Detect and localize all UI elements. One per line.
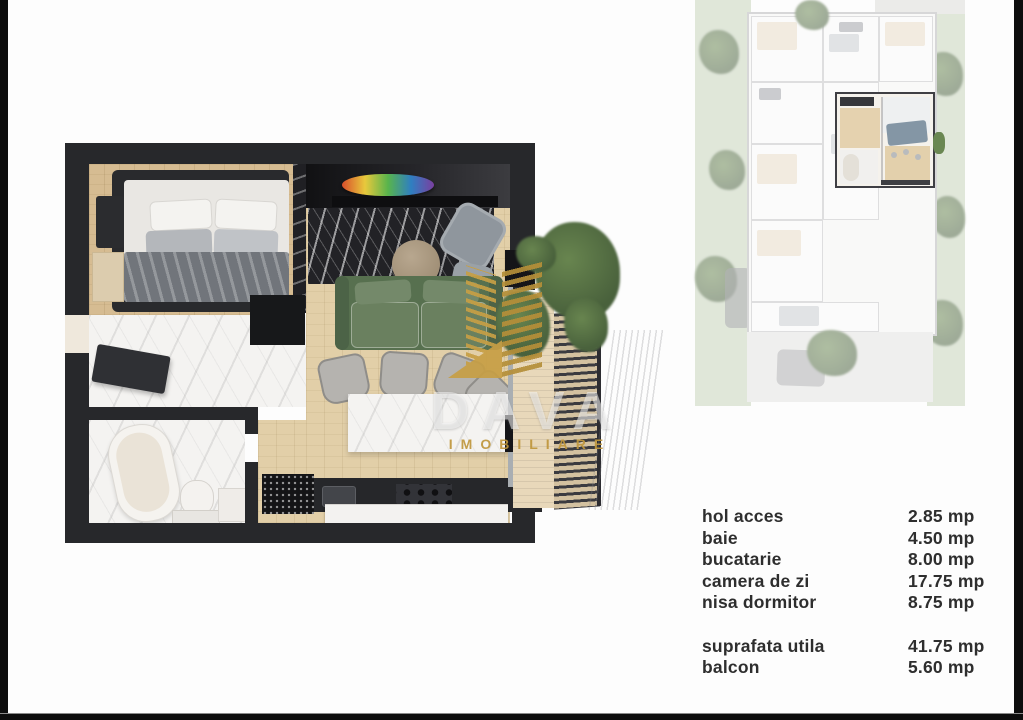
sofa-arm: [335, 276, 349, 350]
wall-hall-bath: [65, 407, 258, 420]
room-name: nisa dormitor: [702, 592, 908, 613]
unit-counter-strip: [881, 180, 930, 185]
wall-bathroom-right-a: [245, 420, 258, 434]
unit-chair-dot: [903, 149, 909, 155]
frame-bottom-bar: [0, 713, 1023, 720]
legend-row: nisa dormitor 8.75 mp: [702, 592, 1002, 614]
faded-furniture: [759, 88, 781, 100]
legend-spacer: [702, 614, 1002, 636]
room-area: 17.75 mp: [908, 571, 985, 592]
apartment-floor-plan: [60, 140, 680, 560]
kitchen-granite-counter: [262, 474, 314, 514]
legend-total-row: balcon 5.60 mp: [702, 657, 1002, 679]
tree: [795, 0, 829, 30]
glass-partition: [293, 164, 306, 313]
tree: [807, 330, 857, 376]
room-area: 8.00 mp: [908, 549, 975, 570]
tv-screen: [342, 174, 434, 196]
bedside-rug: [92, 252, 124, 302]
listing-image: DAVA IMOBILIARE: [0, 0, 1023, 720]
wall-top: [83, 143, 535, 164]
unit-bedroom-floor: [840, 108, 880, 148]
wardrobe-column: [250, 295, 305, 345]
bath-cabinet: [218, 488, 247, 522]
highlighted-unit: [835, 92, 935, 188]
total-name: balcon: [702, 657, 908, 678]
wall-bottom: [65, 523, 535, 543]
room-area: 8.75 mp: [908, 592, 975, 613]
room-name: baie: [702, 528, 908, 549]
room-name: hol acces: [702, 506, 908, 527]
bed-pillow: [149, 198, 212, 231]
dining-chair: [378, 350, 429, 399]
tree: [699, 30, 739, 74]
total-area: 41.75 mp: [908, 636, 985, 657]
unit-sofa: [886, 120, 928, 146]
sofa-back-pillow: [354, 279, 411, 305]
room-name: camera de zi: [702, 571, 908, 592]
wall-left-mid: [65, 353, 89, 407]
unit-balcony-plant: [933, 132, 945, 154]
wall-bathroom-right-b: [245, 462, 258, 523]
room-name: bucatarie: [702, 549, 908, 570]
area-legend: hol acces 2.85 mp baie 4.50 mp bucatarie…: [702, 506, 1002, 679]
frame-left-bar: [0, 0, 8, 720]
legend-row: camera de zi 17.75 mp: [702, 571, 1002, 593]
balcony-plant: [564, 298, 608, 352]
site-plan-faded-layer: [695, 0, 965, 406]
room-area: 4.50 mp: [908, 528, 975, 549]
legend-row: baie 4.50 mp: [702, 528, 1002, 550]
bathtub-basin: [112, 428, 174, 516]
sofa-seat-cushion: [421, 302, 487, 348]
legend-total-row: suprafata utila 41.75 mp: [702, 636, 1002, 658]
frame-right-bar: [1014, 0, 1023, 720]
sofa: [335, 276, 503, 350]
total-name: suprafata utila: [702, 636, 908, 657]
room-area: 2.85 mp: [908, 506, 975, 527]
faded-furniture: [885, 22, 925, 46]
sofa-seat-cushion: [351, 302, 419, 348]
unit-wall-line: [881, 97, 883, 184]
faded-furniture: [757, 230, 801, 256]
tree: [709, 150, 745, 190]
entry-door-threshold: [65, 315, 89, 353]
faded-furniture: [757, 154, 797, 184]
bed-pillow: [214, 198, 277, 231]
unit-chair-dot: [891, 152, 897, 158]
unit-chair-dot: [915, 154, 921, 160]
site-plan: [695, 0, 965, 406]
total-area: 5.60 mp: [908, 657, 975, 678]
legend-row: hol acces 2.85 mp: [702, 506, 1002, 528]
legend-row: bucatarie 8.00 mp: [702, 549, 1002, 571]
kitchen-hob: [396, 484, 452, 506]
faded-furniture: [839, 22, 863, 32]
faded-furniture: [757, 22, 797, 50]
wall-left-upper: [65, 143, 89, 315]
faded-furniture: [829, 34, 859, 52]
faded-furniture: [779, 306, 819, 326]
unit-bathtub: [843, 154, 859, 181]
sofa-back-pillow: [422, 280, 479, 305]
unit-kitchen-strip: [840, 97, 874, 106]
bedside-bench: [96, 196, 124, 248]
balcony-plant: [516, 236, 556, 272]
